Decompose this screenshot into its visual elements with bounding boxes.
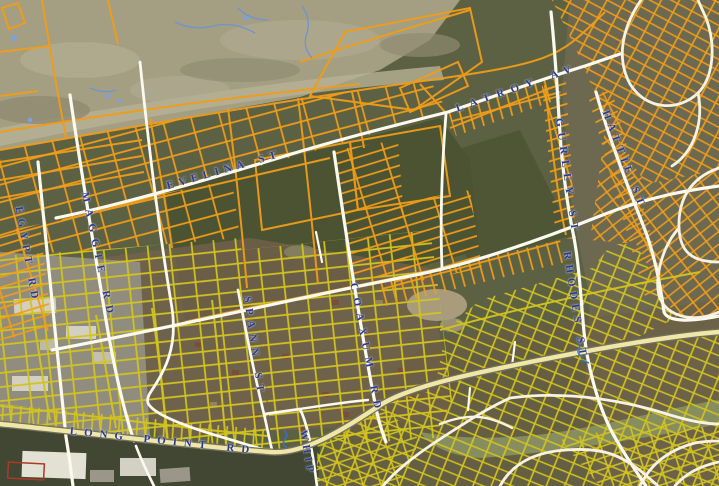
aerial-parcel-map — [0, 0, 719, 486]
map-viewport[interactable]: EGYPT RD MAGGIE RD EVELINA ST LATROY AV … — [0, 0, 719, 486]
